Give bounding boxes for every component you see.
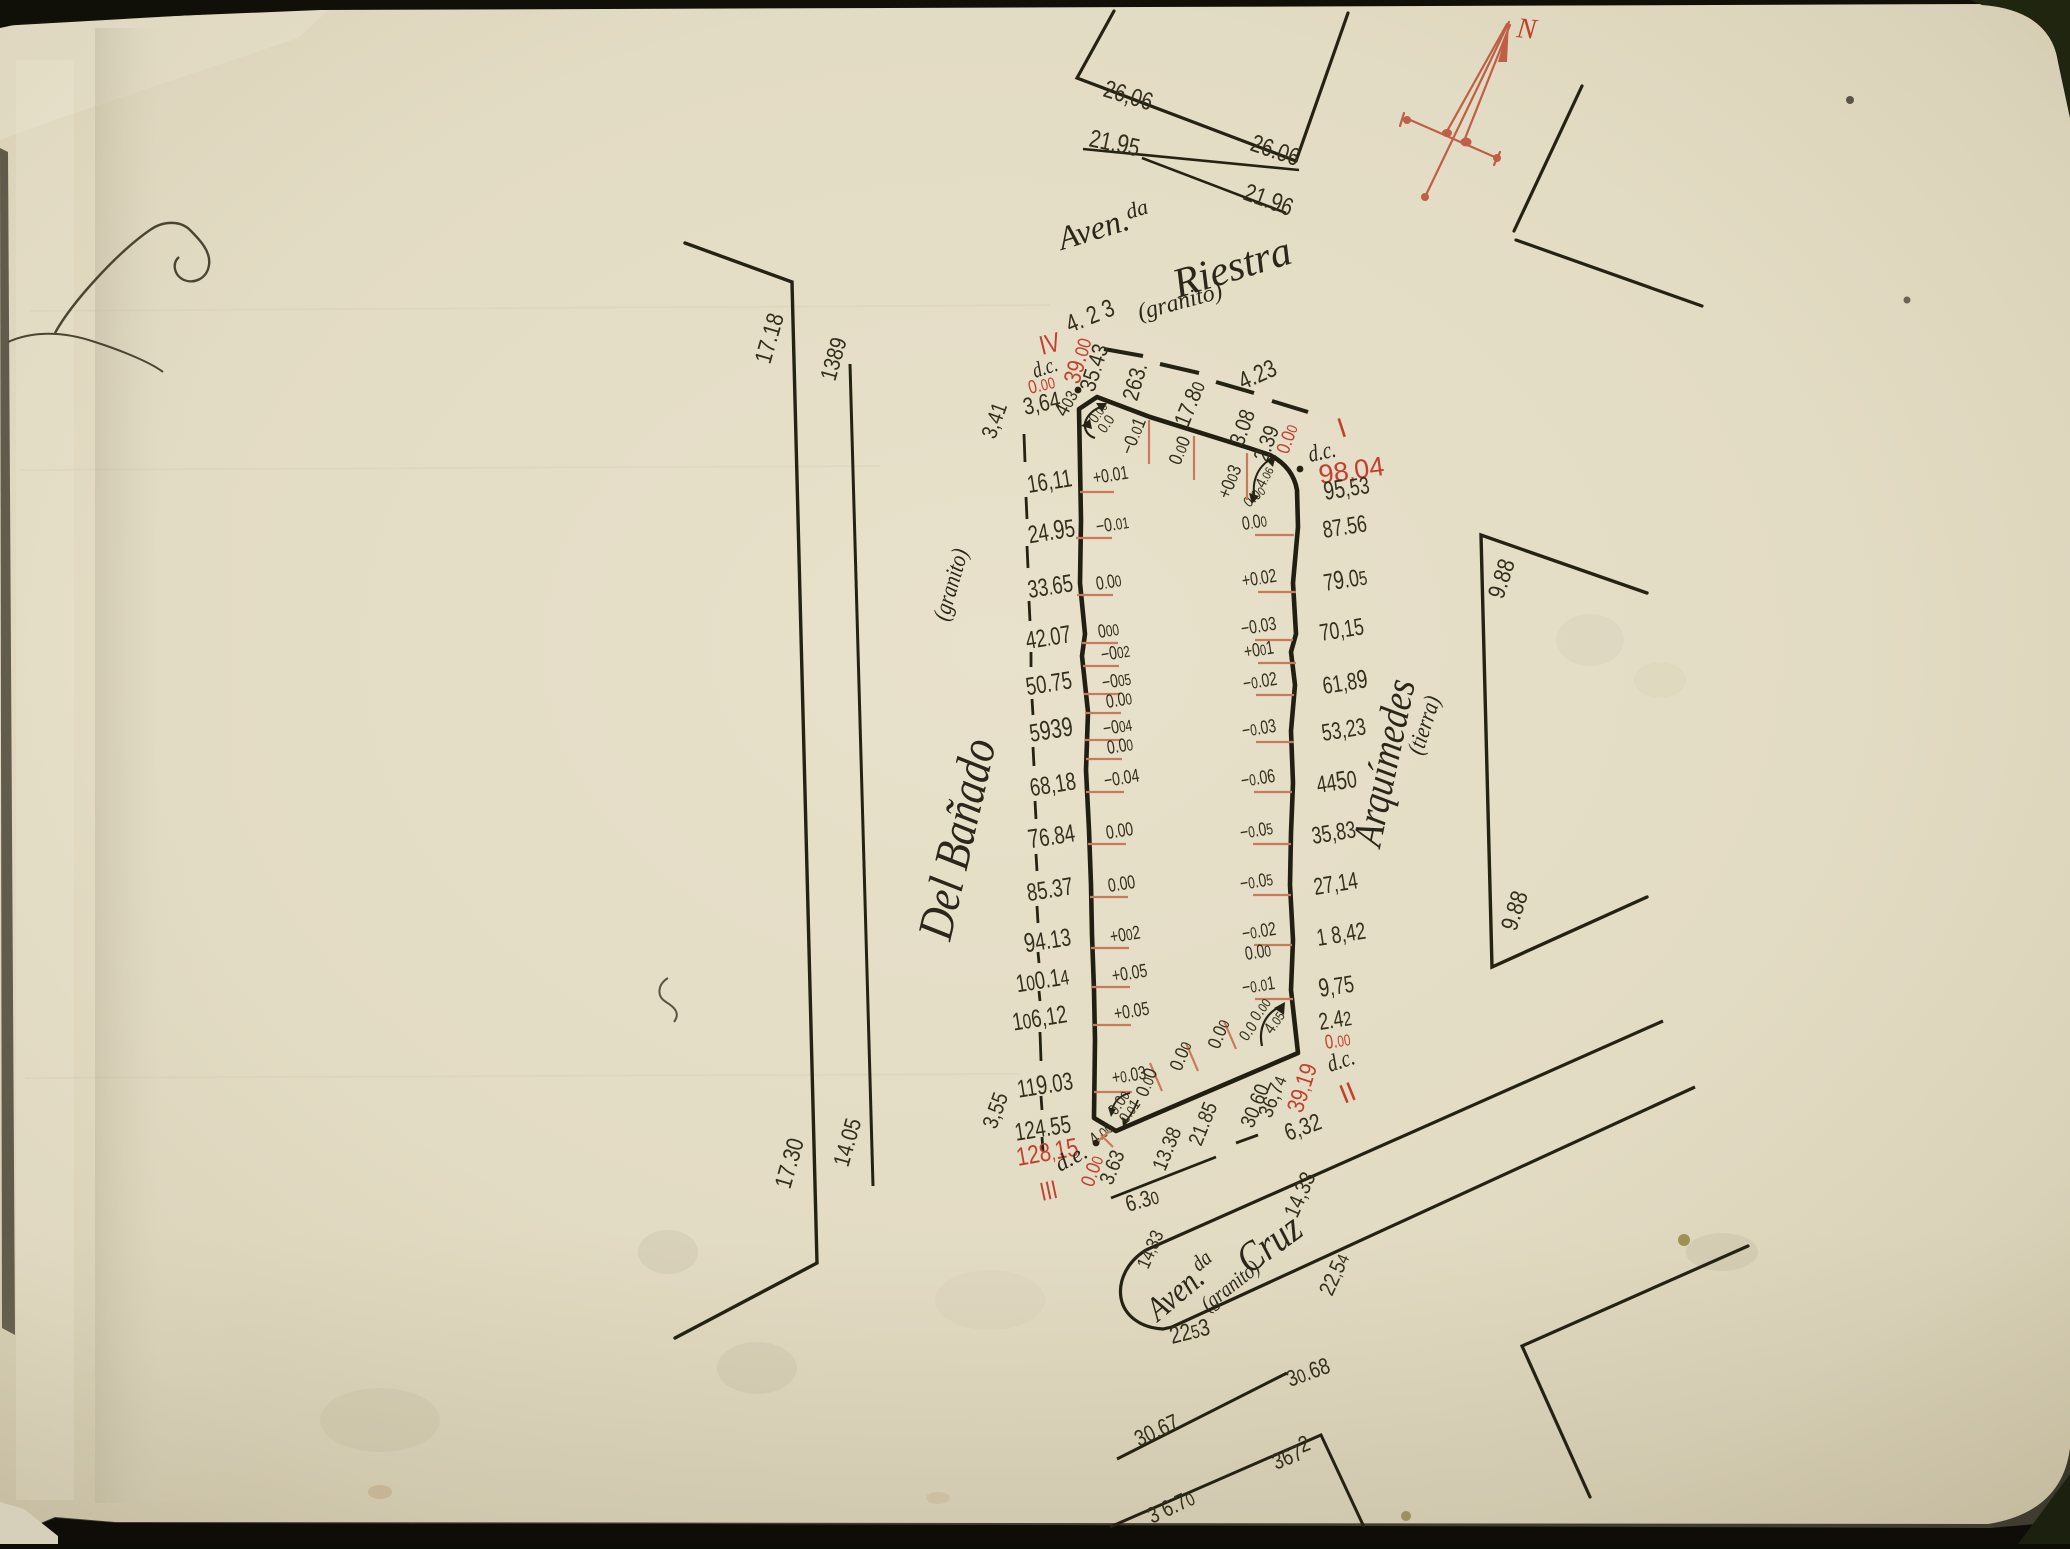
svg-text:0.00: 0.00 [1104,818,1134,844]
svg-text:9,75: 9,75 [1316,968,1356,1003]
svg-text:0.00: 0.00 [1106,871,1136,897]
